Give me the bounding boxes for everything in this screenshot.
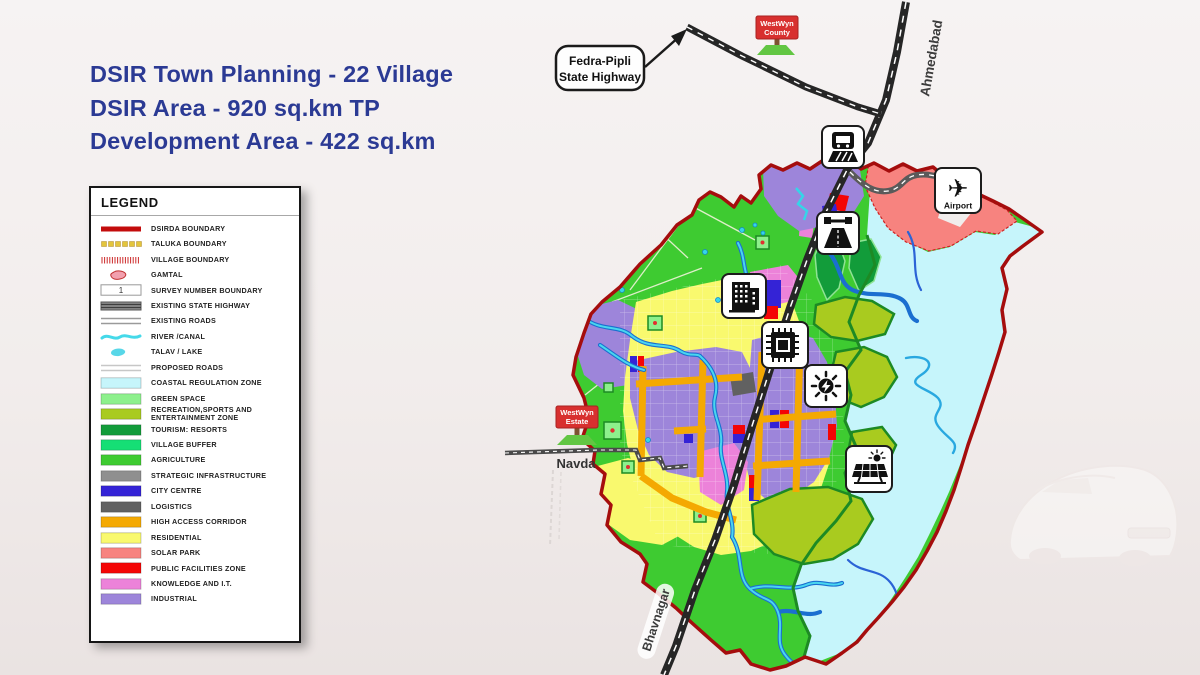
estate-sign-line-2: Estate — [566, 417, 589, 426]
estate-sign-line-1: WestWyn — [560, 408, 594, 417]
svg-text:Ahmedabad: Ahmedabad — [917, 19, 945, 98]
airport-label: Airport — [944, 201, 973, 211]
callout-line-1: Fedra-Pipli — [569, 54, 631, 68]
toll-road-icon — [817, 212, 859, 254]
power-energy-icon — [805, 365, 847, 407]
county-sign-line-2: County — [764, 28, 791, 37]
fedra-pipli-highway — [687, 27, 881, 114]
callout-line-2: State Highway — [559, 70, 641, 84]
faded-car-photo — [1010, 466, 1178, 566]
solar-park-icon — [846, 446, 892, 492]
westwyn-estate-sign: WestWyn Estate — [556, 406, 598, 445]
city-buildings-icon — [722, 274, 766, 318]
faded-post-lines — [550, 470, 561, 546]
ahmedabad-label: Ahmedabad — [917, 19, 945, 98]
planning-map: Fedra-Pipli State Highway WestWyn County… — [0, 0, 1200, 675]
bhavnagar-label: Bhavnagar — [635, 581, 676, 661]
train-station-icon — [822, 126, 864, 168]
fedra-pipli-callout: Fedra-Pipli State Highway — [556, 29, 687, 90]
county-sign-line-1: WestWyn — [760, 19, 794, 28]
westwyn-county-sign: WestWyn County — [756, 16, 798, 55]
airplane-glyph: ✈ — [948, 175, 969, 203]
slide: DSIR Town Planning - 22 Village DSIR Are… — [0, 0, 1200, 675]
navda-label: Navda — [556, 456, 596, 471]
it-chip-icon — [762, 322, 808, 368]
airport-icon: ✈ Airport — [935, 168, 981, 213]
